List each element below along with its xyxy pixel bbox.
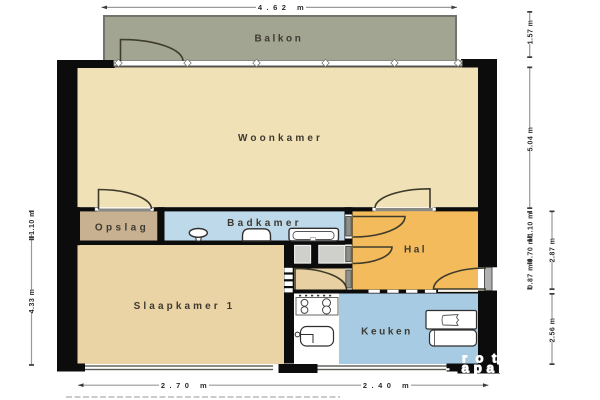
svg-text:2.70 m: 2.70 m — [161, 381, 211, 390]
svg-text:1.10 m: 1.10 m — [29, 210, 36, 235]
svg-text:Opslag: Opslag — [95, 223, 149, 234]
svg-text:1.57 m: 1.57 m — [527, 20, 534, 45]
svg-text:apar: apar — [462, 360, 509, 375]
svg-text:Badkamer: Badkamer — [227, 218, 302, 229]
svg-text:Woonkamer: Woonkamer — [238, 133, 323, 144]
svg-text:5.04 m: 5.04 m — [527, 127, 534, 152]
svg-text:Slaapkamer 1: Slaapkamer 1 — [134, 301, 236, 312]
svg-text:2.40 m: 2.40 m — [363, 381, 413, 390]
svg-text:Keuken: Keuken — [361, 327, 413, 338]
svg-text:Balkon: Balkon — [255, 33, 304, 44]
svg-text:2.56 m: 2.56 m — [550, 318, 557, 343]
svg-text:2.87 m: 2.87 m — [550, 238, 557, 263]
svg-text:0.87 m: 0.87 m — [527, 264, 534, 289]
svg-text:4.33 m: 4.33 m — [29, 289, 36, 314]
svg-text:Hal: Hal — [404, 245, 427, 256]
svg-text:1.10 m: 1.10 m — [527, 212, 534, 237]
svg-text:4.62 m: 4.62 m — [258, 3, 308, 12]
svg-text:0.70 m: 0.70 m — [527, 238, 534, 263]
